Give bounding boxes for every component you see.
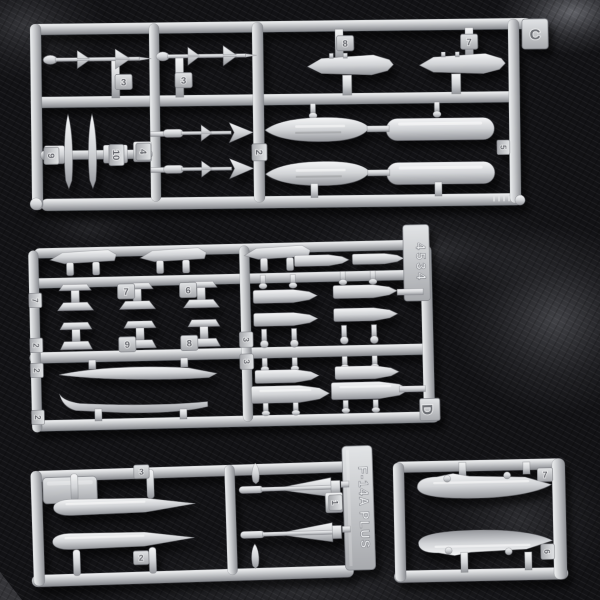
svg-text:4: 4 [137, 149, 148, 155]
part-number-tag: 3 [175, 73, 192, 88]
part-number-tag: 7 [117, 284, 134, 299]
sprue-stub [342, 526, 350, 532]
sprue-stub [397, 289, 423, 296]
svg-text:2: 2 [33, 415, 42, 420]
runner [149, 23, 161, 201]
sprue-letter-tab: D [418, 398, 440, 420]
svg-text:2: 2 [32, 368, 41, 373]
svg-text:8: 8 [187, 338, 193, 349]
part-number-tag: 3 [115, 74, 132, 89]
svg-text:3: 3 [241, 359, 251, 364]
part-number-tag: 2 [31, 410, 44, 425]
svg-text:8: 8 [342, 39, 347, 50]
svg-text:7: 7 [466, 37, 471, 48]
part-number-tag: 3 [134, 465, 150, 479]
part-number-tag: 2 [30, 338, 43, 353]
part-number-tag: 3 [239, 332, 253, 348]
mold-stamp [508, 196, 510, 201]
sprue-stub [367, 126, 389, 132]
svg-text:10: 10 [110, 150, 121, 161]
sprue-letter: C [530, 26, 541, 43]
tank-pod-part [387, 161, 495, 184]
tank-pod-part [386, 117, 494, 140]
mold-stamp [503, 196, 505, 201]
part-number-tag: 8 [181, 335, 198, 350]
runner [393, 463, 406, 582]
part-number-tag: 9 [119, 337, 136, 352]
svg-text:3: 3 [181, 76, 186, 87]
sprue-stub [180, 409, 187, 419]
part-number-tag: 6 [179, 282, 196, 297]
sprue-peg [459, 462, 466, 476]
sprue-stub [399, 386, 425, 393]
svg-text:9: 9 [125, 340, 131, 351]
sprue-peg [73, 550, 81, 576]
svg-text:7: 7 [543, 470, 548, 480]
sprue-stub [181, 358, 188, 367]
sprue-photo: C 3 3 8 7 [0, 0, 600, 600]
sprue-post [452, 74, 461, 94]
sprue-letter-tab: C [522, 19, 548, 49]
mold-stamp [493, 196, 495, 201]
part-number-tag: 4 [136, 143, 151, 160]
runner [30, 24, 43, 210]
mold-code: 4534 [413, 243, 428, 283]
svg-text:5: 5 [498, 145, 507, 150]
part-number-tag: 1 [329, 495, 343, 511]
part-number-tag: 2 [252, 144, 267, 161]
sprue-stub [95, 409, 102, 421]
part-number-tag: 5 [497, 140, 510, 155]
svg-text:1: 1 [330, 500, 340, 505]
svg-text:9: 9 [45, 153, 56, 158]
svg-text:3: 3 [121, 77, 126, 88]
part-number-tag: 3 [240, 354, 254, 370]
sprue-peg [523, 462, 530, 474]
sprue-knob [503, 472, 510, 479]
svg-text:7: 7 [123, 287, 129, 298]
part-number-tag: 6 [541, 544, 555, 560]
part-number-tag: 8 [337, 36, 354, 51]
runner [508, 19, 521, 203]
part-number-tag: 10 [109, 144, 124, 165]
sprue-peg [149, 547, 157, 573]
part-number-tag: 7 [461, 34, 478, 49]
sprue-letter: D [418, 404, 435, 415]
sprue-post [343, 75, 352, 95]
svg-text:2: 2 [139, 553, 144, 563]
svg-text:6: 6 [185, 285, 191, 296]
part-number-tag: 7 [29, 293, 42, 308]
part-number-tag: 2 [30, 363, 43, 378]
part-number-tag: 2 [133, 551, 149, 565]
runner [552, 458, 568, 579]
sprue-peg [461, 552, 468, 572]
part-number-tag: 9 [44, 147, 59, 164]
svg-text:7: 7 [30, 298, 39, 303]
sprue-stub [89, 360, 96, 369]
kit-label: F-14A PLUS [355, 466, 372, 549]
sprue-knob [445, 547, 452, 554]
sprue-knob [505, 548, 512, 555]
runner [252, 22, 265, 202]
sprue-knob [444, 475, 451, 482]
mold-stamp [498, 196, 500, 201]
sprue-gate [515, 195, 525, 205]
sprue-peg [525, 552, 532, 570]
part-number-tag: 7 [537, 468, 553, 482]
sprue-photo-canvas: C 3 3 8 7 [0, 0, 600, 600]
sprue-peg [70, 474, 78, 501]
svg-text:3: 3 [139, 467, 144, 477]
kit-label-tab: F-14A PLUS [342, 445, 376, 570]
sprue-stub [368, 170, 390, 176]
svg-text:2: 2 [253, 150, 264, 155]
svg-text:6: 6 [542, 549, 552, 554]
sprue-gate [30, 198, 42, 210]
sprue-peg [435, 182, 442, 196]
svg-text:2: 2 [31, 343, 40, 348]
svg-text:3: 3 [241, 337, 251, 342]
sprue-peg [311, 184, 318, 198]
sprue-stub [341, 481, 349, 487]
